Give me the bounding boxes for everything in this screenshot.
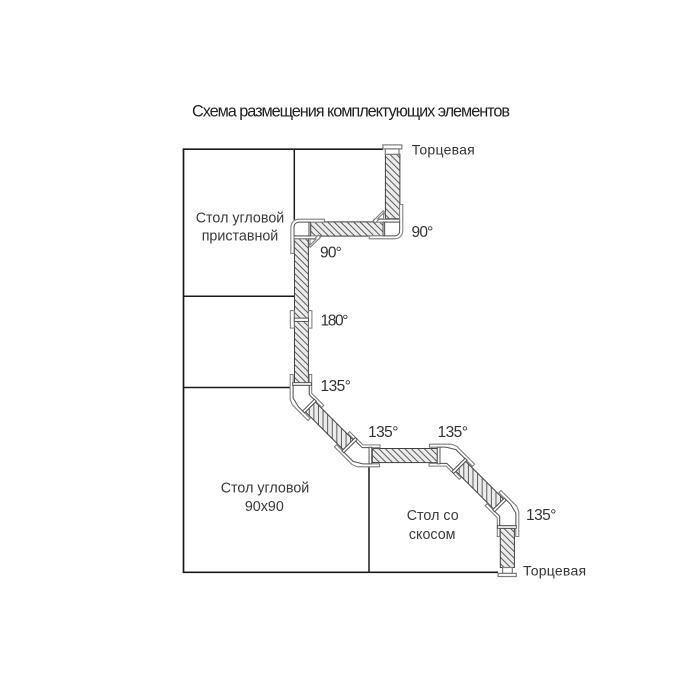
svg-text:90°: 90° [412, 224, 434, 241]
svg-text:Стол со: Стол со [407, 508, 459, 524]
svg-text:135°: 135° [438, 424, 468, 441]
svg-text:90°: 90° [320, 244, 342, 261]
svg-text:Стол угловой: Стол угловой [196, 211, 285, 227]
svg-text:Торцевая: Торцевая [412, 141, 475, 157]
svg-text:приставной: приставной [202, 229, 279, 245]
svg-text:Схема размещения комплектующих: Схема размещения комплектующих элементов [192, 103, 509, 121]
svg-text:Торцевая: Торцевая [523, 562, 586, 578]
svg-text:90х90: 90х90 [245, 499, 284, 515]
svg-text:180°: 180° [321, 313, 349, 330]
svg-text:скосом: скосом [409, 527, 456, 543]
svg-text:135°: 135° [526, 507, 556, 524]
svg-text:135°: 135° [368, 424, 398, 441]
svg-text:Стол угловой: Стол угловой [221, 481, 310, 497]
svg-text:135°: 135° [321, 378, 351, 395]
